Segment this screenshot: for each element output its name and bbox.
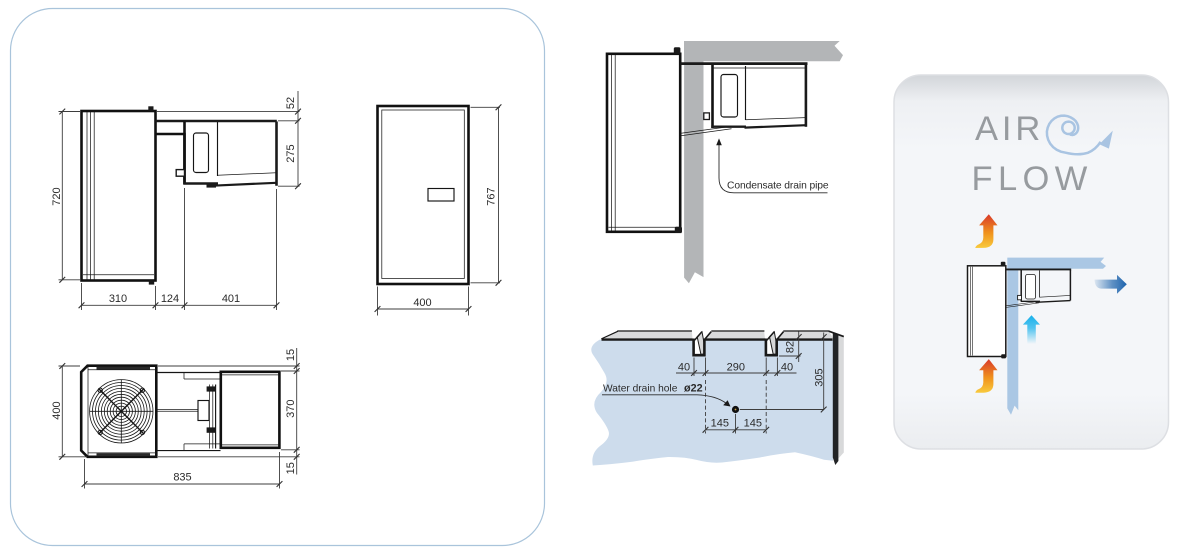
svg-text:400: 400 (413, 297, 431, 309)
svg-text:145: 145 (744, 417, 762, 429)
svg-text:835: 835 (173, 472, 191, 484)
svg-text:15: 15 (285, 462, 297, 474)
svg-text:40: 40 (678, 362, 690, 374)
svg-text:290: 290 (727, 362, 745, 374)
svg-text:401: 401 (222, 293, 240, 305)
svg-text:Water drain hole: Water drain hole (603, 383, 678, 394)
svg-text:720: 720 (51, 187, 63, 205)
svg-text:767: 767 (485, 187, 497, 205)
svg-text:82: 82 (784, 341, 796, 353)
svg-text:370: 370 (285, 400, 297, 418)
svg-text:275: 275 (285, 144, 297, 162)
svg-text:305: 305 (813, 368, 825, 386)
svg-text:400: 400 (51, 401, 63, 419)
svg-text:15: 15 (285, 349, 297, 361)
svg-text:310: 310 (109, 293, 127, 305)
svg-text:145: 145 (711, 417, 729, 429)
svg-text:AIR: AIR (975, 110, 1044, 148)
svg-text:ø22: ø22 (684, 382, 703, 394)
svg-text:40: 40 (781, 362, 793, 374)
svg-text:124: 124 (161, 293, 179, 305)
svg-text:FLOW: FLOW (972, 160, 1093, 198)
svg-text:52: 52 (285, 97, 297, 109)
svg-text:Condensate drain pipe: Condensate drain pipe (727, 181, 829, 192)
